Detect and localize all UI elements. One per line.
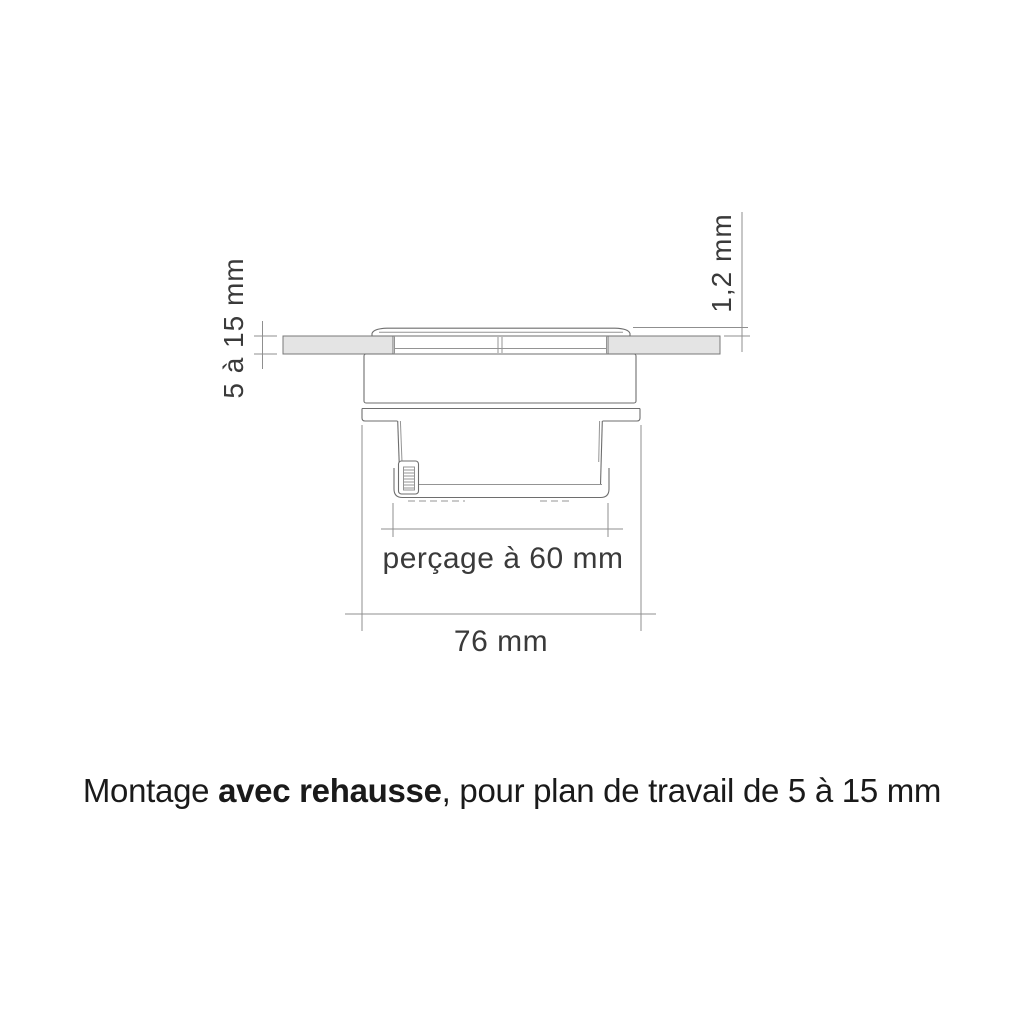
mounting-flange xyxy=(362,409,640,422)
worktop-slab-left xyxy=(283,336,393,354)
drill-hole-label: perçage à 60 mm xyxy=(383,542,624,575)
caption-suffix: , pour plan de travail de 5 à 15 mm xyxy=(442,772,941,809)
caption: Montage avec rehausse, pour plan de trav… xyxy=(0,771,1024,811)
dimension-drill-hole: perçage à 60 mm xyxy=(381,503,623,575)
dimension-worktop-thickness: 5 à 15 mm xyxy=(218,257,277,398)
clamping-screw xyxy=(399,461,419,494)
installation-cross-section-diagram: 5 à 15 mm 1,2 mm perçage à 60 mm 76 mm xyxy=(0,0,1024,1024)
overall-width-label: 76 mm xyxy=(454,625,548,658)
caption-mounting-type: avec rehausse xyxy=(218,772,442,809)
housing-body xyxy=(394,421,609,498)
diagram-page: 5 à 15 mm 1,2 mm perçage à 60 mm 76 mm M… xyxy=(0,0,1024,1024)
bottom-tray xyxy=(394,468,609,498)
upper-housing-neck xyxy=(395,336,607,354)
riser-body xyxy=(364,354,636,403)
cover-height-label: 1,2 mm xyxy=(706,213,737,312)
cover-lid xyxy=(372,328,630,336)
caption-prefix: Montage xyxy=(83,772,218,809)
worktop-slab-right xyxy=(608,336,720,354)
worktop-thickness-label: 5 à 15 mm xyxy=(218,257,249,398)
dimension-cover-height: 1,2 mm xyxy=(633,212,750,352)
